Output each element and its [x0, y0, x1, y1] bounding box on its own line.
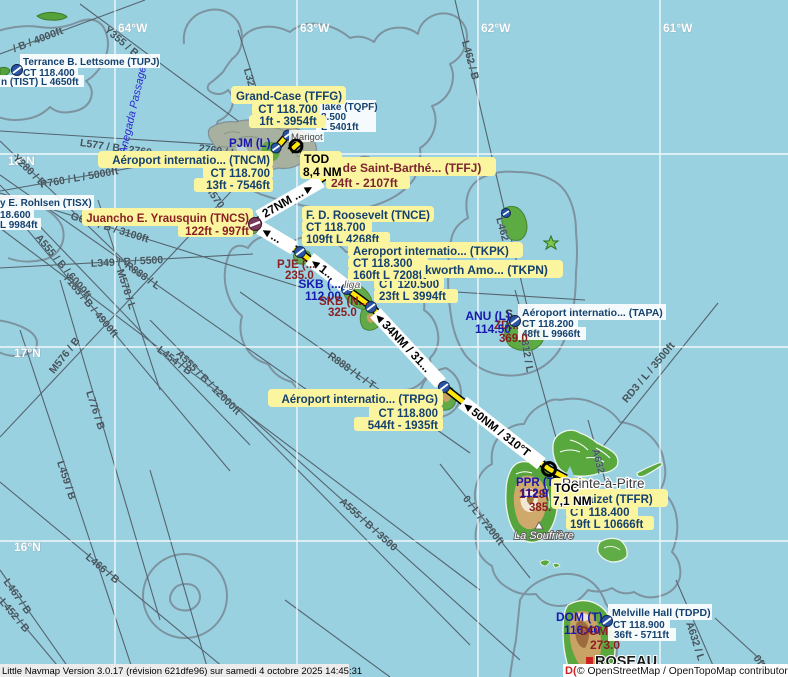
svg-text:16°N: 16°N — [14, 540, 41, 554]
svg-text:TOD: TOD — [304, 152, 329, 166]
svg-text:y E. Rohlsen (TISX): y E. Rohlsen (TISX) — [0, 198, 92, 209]
svg-text:liga: liga — [344, 279, 361, 291]
svg-text:D(: D( — [565, 665, 577, 677]
svg-text:17°N: 17°N — [14, 346, 41, 360]
svg-text:n (TIST) L 4650ft: n (TIST) L 4650ft — [1, 77, 79, 88]
svg-text:325.0: 325.0 — [328, 307, 357, 319]
svg-text:7,1 NM: 7,1 NM — [553, 494, 592, 508]
svg-text:L 9984ft: L 9984ft — [0, 220, 38, 231]
svg-text:160ft L 7208ft: 160ft L 7208ft — [353, 270, 426, 282]
svg-text:62°W: 62°W — [481, 21, 511, 35]
svg-text:F. D. Roosevelt (TNCE): F. D. Roosevelt (TNCE) — [306, 210, 430, 222]
svg-text:DOM: DOM — [580, 624, 608, 638]
svg-text:TOC: TOC — [554, 481, 579, 495]
svg-text:CT 118.700: CT 118.700 — [211, 168, 270, 180]
svg-text:19ft L 10666ft: 19ft L 10666ft — [570, 519, 643, 531]
svg-text:CT 118.700: CT 118.700 — [306, 222, 365, 234]
svg-text:61°W: 61°W — [663, 21, 693, 35]
svg-text:Little Navmap Version 3.0.17 (: Little Navmap Version 3.0.17 (révision 6… — [2, 666, 362, 677]
svg-text:122ft - 997ft: 122ft - 997ft — [185, 226, 249, 238]
svg-text:ANU (L): ANU (L) — [465, 309, 510, 323]
svg-text:112.9: 112.9 — [520, 488, 548, 500]
svg-text:© OpenStreetMap / OpenTopoMap: © OpenStreetMap / OpenTopoMap contributo… — [577, 666, 788, 677]
svg-text:PJM (L): PJM (L) — [229, 138, 271, 150]
svg-text:36ft - 5711ft: 36ft - 5711ft — [614, 630, 670, 641]
svg-text:CT 118.700: CT 118.700 — [258, 104, 317, 116]
svg-text:23ft L 3994ft: 23ft L 3994ft — [379, 291, 446, 303]
svg-text:Aéroport internatio... (TRPG): Aéroport internatio... (TRPG) — [281, 394, 438, 406]
svg-text:kworth Amo... (TKPN): kworth Amo... (TKPN) — [425, 263, 548, 277]
svg-text:8,4 NM: 8,4 NM — [303, 165, 342, 179]
svg-text:64°W: 64°W — [118, 21, 148, 35]
svg-text:La Soufrière: La Soufrière — [514, 530, 574, 542]
svg-text:Juancho E. Yrausquin (TNCS): Juancho E. Yrausquin (TNCS) — [86, 213, 249, 225]
svg-text:13ft - 7546ft: 13ft - 7546ft — [206, 180, 270, 192]
svg-text:114.50: 114.50 — [475, 322, 511, 336]
svg-text:235.0: 235.0 — [285, 270, 314, 282]
svg-text:Aeroport internatio... (TKPK): Aeroport internatio... (TKPK) — [353, 246, 509, 258]
svg-text:CT 118.800: CT 118.800 — [379, 408, 438, 420]
svg-text:Aéroport internatio... (TNCM): Aéroport internatio... (TNCM) — [112, 155, 270, 167]
svg-text:Grand-Case (TFFG): Grand-Case (TFFG) — [236, 91, 342, 103]
svg-text:48ft L 9966ft: 48ft L 9966ft — [522, 329, 581, 340]
svg-text:L 5401ft: L 5401ft — [321, 122, 359, 133]
svg-text:DOM (T): DOM (T) — [556, 610, 603, 624]
svg-text:544ft - 1935ft: 544ft - 1935ft — [368, 420, 438, 432]
svg-text:Aéroport internatio... (TAPA): Aéroport internatio... (TAPA) — [522, 307, 663, 319]
svg-text:Melville Hall (TDPD): Melville Hall (TDPD) — [612, 607, 711, 619]
svg-text:Terrance B. Lettsome (TUPJ): Terrance B. Lettsome (TUPJ) — [23, 57, 160, 68]
svg-text:63°W: 63°W — [300, 21, 330, 35]
svg-text:CT 118.300: CT 118.300 — [353, 258, 412, 270]
svg-text:1ft - 3954ft: 1ft - 3954ft — [259, 116, 317, 128]
svg-text:Île de Saint-Barthé... (TFFJ): Île de Saint-Barthé... (TFFJ) — [325, 160, 481, 175]
svg-text:385.: 385. — [529, 502, 551, 514]
